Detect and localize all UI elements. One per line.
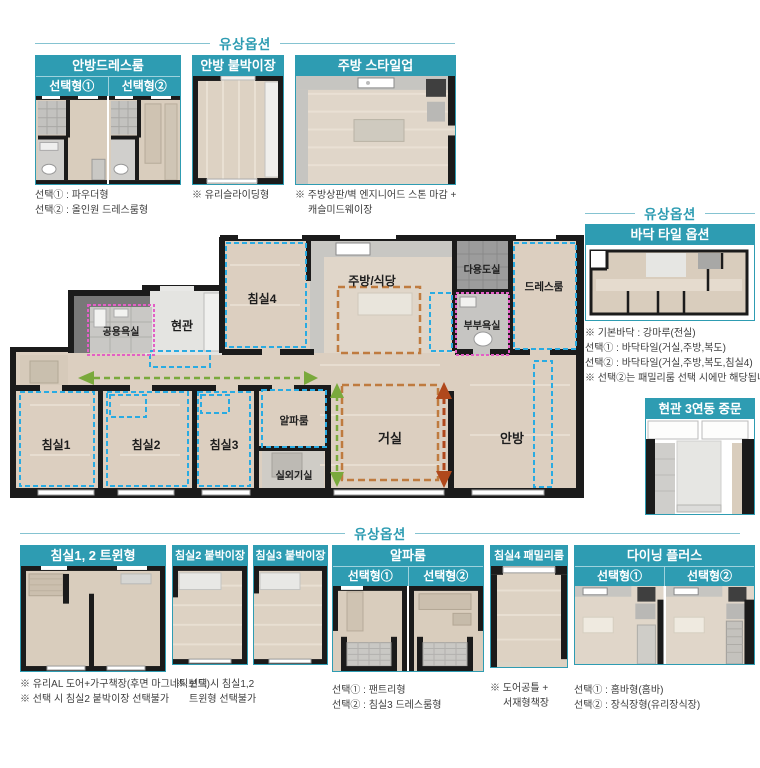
option-box-dining-plus: 다이닝 플러스 선택형① 선택형② — [574, 545, 755, 665]
option-tab-2: 선택형② — [108, 77, 181, 96]
caption-line: ※ 주방상판/벽 엔지니어드 스톤 마감 + — [295, 188, 456, 203]
right-section-header: 유상옵션 — [585, 203, 755, 223]
option-box-title: 알파룸 — [333, 546, 483, 566]
caption-line: 선택① : 팬트리형 — [332, 683, 441, 698]
caption-line: 서재형책장 — [490, 696, 549, 711]
option-tabs: 선택형① 선택형② — [575, 566, 754, 586]
top-section-header: 유상옵션 — [35, 33, 455, 53]
option-box-title: 침실2 붙박이장 — [173, 546, 247, 566]
thumb-dining-type1 — [575, 586, 664, 664]
caption-bedroom4-familyroom: ※ 도어공틀 + 서재형책장 — [490, 681, 549, 711]
caption-line: 캐슬미드웨이장 — [295, 203, 456, 218]
caption-line: 선택② : 장식장형(유리장식장) — [574, 698, 700, 713]
option-box-title: 침실3 붙박이장 — [254, 546, 327, 566]
thumb-dressroom-type2 — [109, 96, 180, 184]
thumb-row — [36, 96, 180, 184]
option-box-title: 현관 3연동 중문 — [646, 399, 754, 419]
option-tab-1: 선택형① — [36, 77, 108, 96]
thumb-kitchen-styleup — [296, 76, 455, 184]
header-line — [35, 43, 210, 44]
option-box-floor-tile: 바닥 타일 옵션 — [585, 224, 755, 321]
thumb-dining-type2 — [666, 586, 755, 664]
room-label-common-bath: 공용욕실 — [103, 325, 140, 338]
floorplan-options-sheet: 유상옵션 안방드레스룸 선택형① 선택형② — [0, 0, 760, 768]
option-box-master-closet: 안방 붙박이장 — [192, 55, 284, 185]
section-title: 유상옵션 — [644, 203, 696, 223]
option-box-title: 침실4 패밀리룸 — [491, 546, 567, 566]
thumb-dressroom-type1 — [36, 96, 107, 184]
caption-line: ※ 유리슬라이딩형 — [192, 188, 269, 203]
header-line — [585, 213, 635, 214]
thumb-alpha-type2 — [409, 586, 483, 671]
option-box-twin-bedroom: 침실1, 2 트윈형 — [20, 545, 166, 672]
caption-kitchen-styleup: ※ 주방상판/벽 엔지니어드 스톤 마감 + 캐슬미드웨이장 — [295, 188, 456, 218]
caption-line: 선택① : 바닥타일(거실,주방,복도) — [585, 341, 760, 356]
caption-floor-tile: ※ 기본바닥 : 강마루(전실) 선택① : 바닥타일(거실,주방,복도) 선택… — [585, 326, 760, 386]
option-box-title: 주방 스타일업 — [296, 56, 455, 76]
bottom-section-header: 유상옵션 — [20, 523, 740, 543]
caption-master-closet: ※ 유리슬라이딩형 — [192, 188, 269, 203]
option-box-entrance-door: 현관 3연동 중문 — [645, 398, 755, 515]
header-line — [20, 533, 345, 534]
room-label-master-bath: 부부욕실 — [464, 319, 501, 332]
option-tab-1: 선택형① — [333, 567, 408, 586]
section-title: 유상옵션 — [219, 33, 271, 53]
thumb-row — [575, 586, 754, 664]
section-title: 유상옵션 — [354, 523, 406, 543]
caption-line: ※ 선택 시 침실1,2 — [176, 677, 256, 692]
caption-line: 선택② : 바닥타일(거실,주방,복도,침실4) — [585, 356, 760, 371]
room-label-alpha-room: 알파룸 — [280, 414, 309, 427]
room-label-bedroom2: 침실2 — [132, 437, 161, 452]
header-line — [280, 43, 455, 44]
option-box-title: 침실1, 2 트윈형 — [21, 546, 165, 566]
option-tab-2: 선택형② — [664, 567, 754, 586]
room-label-dressroom: 드레스룸 — [525, 280, 564, 293]
option-box-alpha-room: 알파룸 선택형① 선택형② — [332, 545, 484, 672]
thumb-bedroom2-closet — [173, 566, 247, 664]
caption-line: 트윈형 선택불가 — [176, 692, 256, 707]
caption-dining-plus: 선택① : 홈바형(홈바) 선택② : 장식장형(유리장식장) — [574, 683, 700, 713]
thumb-row — [173, 566, 247, 664]
thumb-entrance-door — [646, 419, 754, 514]
caption-line: ※ 도어공틀 + — [490, 681, 549, 696]
thumb-row — [586, 245, 754, 320]
caption-master-dressroom: 선택① : 파우더형 선택② : 올인원 드레스룸형 — [35, 188, 148, 218]
option-box-kitchen-styleup: 주방 스타일업 — [295, 55, 456, 185]
thumb-twin-bedroom — [21, 566, 165, 671]
thumb-alpha-type1 — [333, 586, 407, 671]
thumb-row — [491, 566, 567, 667]
room-label-bedroom4: 침실4 — [248, 291, 277, 306]
thumb-floor-tile-plan — [586, 245, 754, 320]
thumb-row — [333, 586, 483, 671]
option-tab-2: 선택형② — [408, 567, 484, 586]
caption-line: 선택② : 올인원 드레스룸형 — [35, 203, 148, 218]
thumb-row — [646, 419, 754, 514]
header-line — [705, 213, 755, 214]
option-box-title: 안방 붙박이장 — [193, 56, 283, 76]
option-tabs: 선택형① 선택형② — [333, 566, 483, 586]
option-box-bedroom2-closet: 침실2 붙박이장 — [172, 545, 248, 665]
thumb-row — [254, 566, 327, 664]
caption-line: 선택① : 파우더형 — [35, 188, 148, 203]
caption-line: 선택① : 홈바형(홈바) — [574, 683, 700, 698]
room-label-living: 거실 — [378, 431, 402, 446]
caption-alpha-room: 선택① : 팬트리형 선택② : 침실3 드레스룸형 — [332, 683, 441, 713]
room-label-master: 안방 — [500, 431, 524, 446]
option-box-bedroom4-familyroom: 침실4 패밀리룸 — [490, 545, 568, 668]
option-tabs: 선택형① 선택형② — [36, 76, 180, 96]
thumb-row — [21, 566, 165, 671]
room-label-entrance: 현관 — [171, 318, 193, 333]
option-tab-1: 선택형① — [575, 567, 664, 586]
option-box-title: 안방드레스룸 — [36, 56, 180, 76]
thumb-bedroom4-familyroom — [491, 566, 567, 667]
caption-line: ※ 선택②는 패밀리룸 선택 시에만 해당됩니다. — [585, 371, 760, 386]
option-box-title: 다이닝 플러스 — [575, 546, 754, 566]
option-box-bedroom3-closet: 침실3 붙박이장 — [253, 545, 328, 665]
option-box-master-dressroom: 안방드레스룸 선택형① 선택형② — [35, 55, 181, 185]
room-label-bedroom1: 침실1 — [42, 437, 71, 452]
option-box-title: 바닥 타일 옵션 — [586, 225, 754, 245]
thumb-row — [193, 76, 283, 184]
main-floor-plan: 현관 공용욕실 침실4 주방/식당 다용도실 부부욕실 드레스룸 침실1 침실2… — [10, 235, 585, 510]
caption-bedroom2-closet: ※ 선택 시 침실1,2 트윈형 선택불가 — [176, 677, 256, 707]
room-label-kitchen-dining: 주방/식당 — [348, 273, 396, 288]
room-label-outdoor-unit: 실외기실 — [276, 469, 313, 482]
thumb-row — [296, 76, 455, 184]
header-line — [415, 533, 740, 534]
room-label-bedroom3: 침실3 — [210, 437, 239, 452]
thumb-bedroom3-closet — [254, 566, 327, 664]
caption-line: ※ 기본바닥 : 강마루(전실) — [585, 326, 760, 341]
room-label-utility: 다용도실 — [464, 263, 501, 276]
thumb-master-closet — [193, 76, 283, 184]
caption-line: 선택② : 침실3 드레스룸형 — [332, 698, 441, 713]
